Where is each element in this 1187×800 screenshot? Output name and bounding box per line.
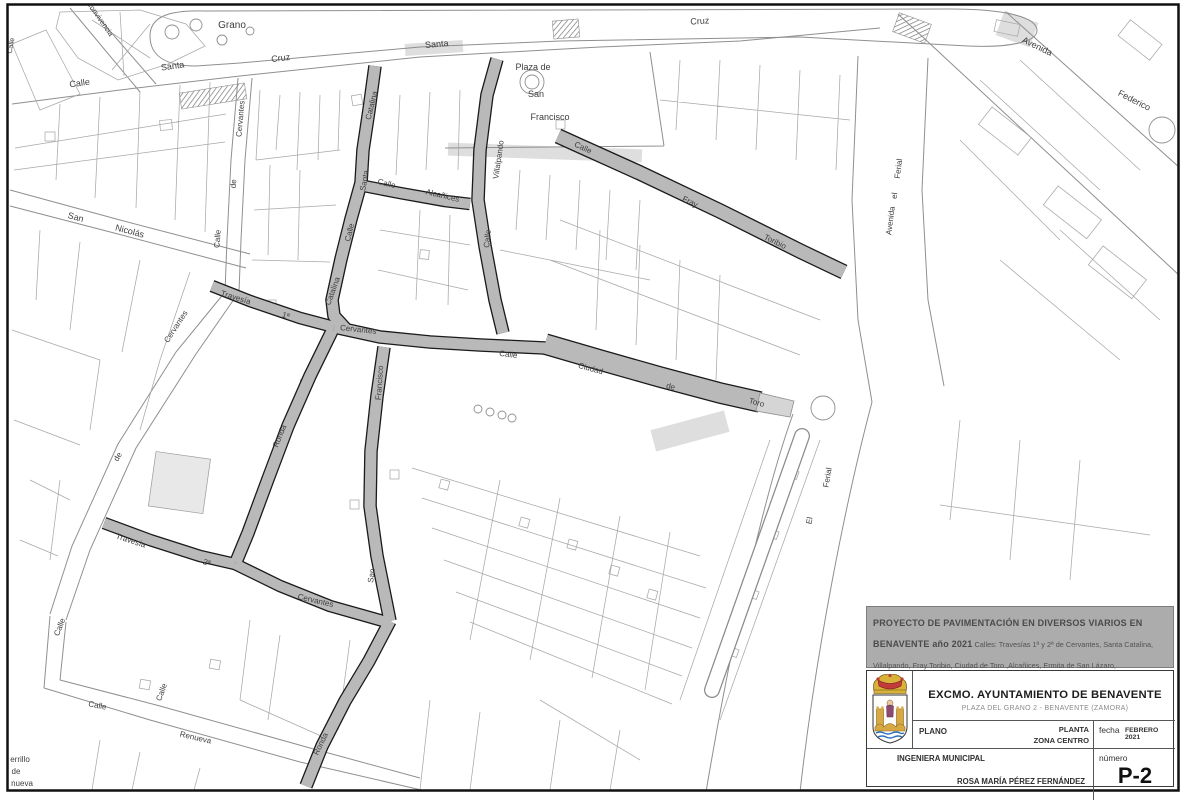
street-label: Cruz [690, 15, 710, 26]
street-label: Avenida [884, 205, 897, 235]
plano-label: PLANO [919, 727, 947, 736]
street-label: El [804, 516, 814, 525]
street-label: Grano [218, 20, 246, 31]
street-label: Calle [69, 77, 91, 90]
author-name: ROSA MARÍA PÉREZ FERNÁNDEZ [957, 777, 1085, 786]
crosswalk-hatches [179, 13, 931, 109]
project-streets-fill [104, 59, 844, 786]
street-label: Plaza de [515, 62, 550, 72]
plano-value: PLANTA ZONA CENTRO [977, 724, 1089, 746]
street-label: de [112, 450, 125, 463]
street-label: nueva [11, 779, 33, 788]
project-title-line1: PROYECTO DE PAVIMENTACIÓN EN DIVERSOS VI… [873, 618, 1142, 628]
street-label: Ferial [821, 467, 833, 488]
street-label: Federico [1116, 88, 1152, 113]
plano-value-line1: PLANTA [1059, 725, 1089, 734]
street-label: Cruz [271, 52, 292, 64]
street-label: Santa [160, 59, 185, 72]
fecha-label: fecha [1099, 725, 1120, 735]
street-label: Calle [154, 682, 169, 703]
divider-line [867, 748, 1175, 749]
street-label: San [528, 89, 544, 99]
street-label: Francisco [530, 112, 569, 122]
street-label: el [890, 192, 900, 199]
street-label: Calle [499, 349, 519, 361]
street-label: Calle [88, 699, 108, 711]
title-block-body: EXCMO. AYUNTAMIENTO DE BENAVENTE PLAZA D… [866, 670, 1174, 787]
fecha-value: FEBRERO 2021 [1125, 727, 1173, 741]
divider-line [913, 720, 1175, 721]
street-label: de [229, 178, 239, 188]
street-label: errillo [10, 755, 30, 764]
numero-label: número [1099, 753, 1127, 763]
plano-value-line2: ZONA CENTRO [1034, 736, 1089, 745]
project-title-line2-bold: BENAVENTE año 2021 [873, 639, 972, 649]
benavente-coat-of-arms [868, 671, 912, 747]
street-label: Ferial [893, 158, 904, 179]
street-label: Calle [212, 229, 223, 248]
divider-line [1093, 720, 1094, 800]
street-label: Santa [425, 38, 449, 50]
street-label: Cervantes [234, 100, 246, 137]
project-title-box: PROYECTO DE PAVIMENTACIÓN EN DIVERSOS VI… [866, 606, 1174, 668]
street-label: Convivencia [85, 0, 116, 39]
street-label: Renueva [179, 730, 213, 746]
numero-value: P-2 [1095, 763, 1175, 789]
street-label: de [12, 767, 21, 776]
street-label: San [67, 210, 85, 224]
project-title-line3: Villalpando, Fray Toribio, Ciudad de Tor… [873, 661, 1116, 670]
title-block: PROYECTO DE PAVIMENTACIÓN EN DIVERSOS VI… [866, 606, 1176, 787]
coat-of-arms-cell [867, 671, 913, 748]
plan-sheet: GranoCalleSantaCruzConvivenciaCalleSanta… [0, 0, 1187, 800]
street-label: 2ª [202, 557, 212, 568]
organization-name: EXCMO. AYUNTAMIENTO DE BENAVENTE [913, 689, 1177, 701]
project-title-line2-rest: Calles: Travesías 1ª y 2ª de Cervantes, … [972, 640, 1153, 649]
ferial-platform [712, 436, 802, 690]
street-label: Avenida [1021, 35, 1054, 58]
author-role: INGENIERA MUNICIPAL [897, 754, 985, 763]
organization-address: PLAZA DEL GRANO 2 - BENAVENTE (ZAMORA) [913, 705, 1177, 712]
